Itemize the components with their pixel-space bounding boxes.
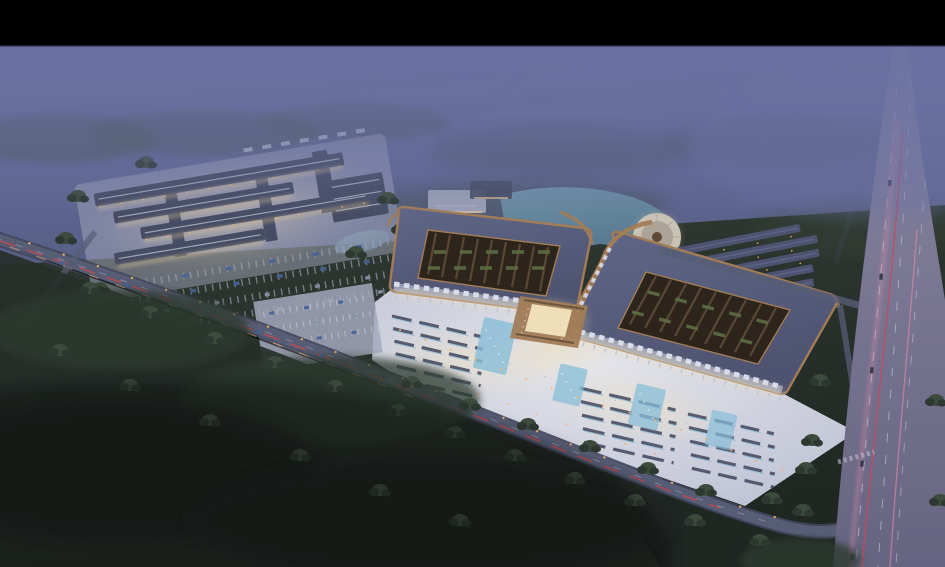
aerial-rendering xyxy=(0,0,945,567)
letterbox-bar xyxy=(0,0,945,45)
letterbox-edge xyxy=(0,45,945,47)
rendering-frame xyxy=(0,0,945,567)
